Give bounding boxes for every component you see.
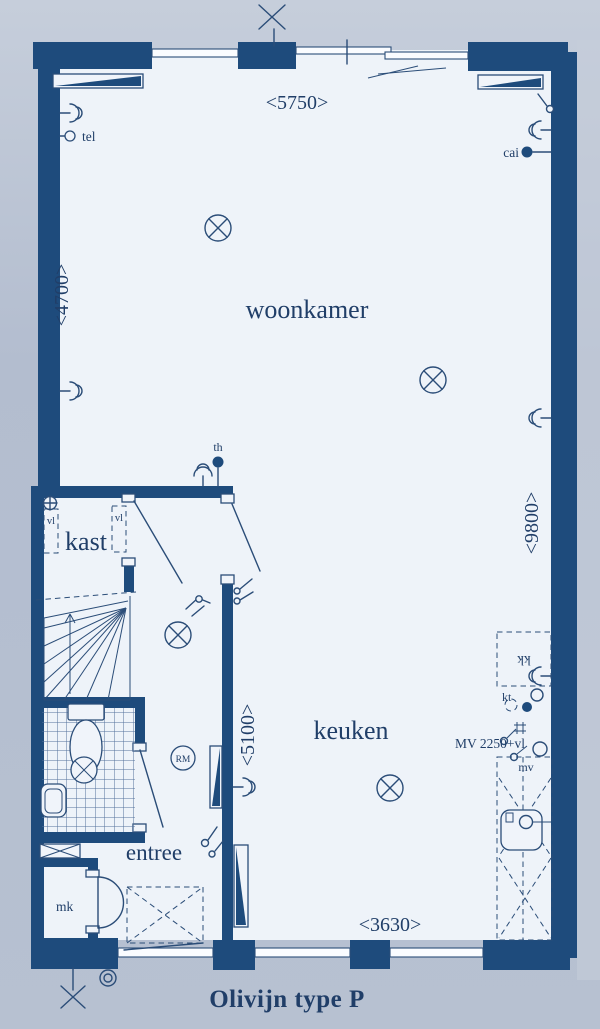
radiator-top-left <box>53 74 143 88</box>
wall-hall-keuken <box>222 577 233 940</box>
wall-toilet-east <box>135 697 145 745</box>
radiator-top-right <box>478 75 543 89</box>
floorplan-drawing: tel cai th RM vl vl <box>0 0 600 1029</box>
wall-mk-north <box>31 858 98 867</box>
window-bottom-mid <box>255 948 350 957</box>
vent-label: vl <box>47 516 55 527</box>
wall-kast-north <box>43 486 233 498</box>
radiator-entree <box>210 746 222 808</box>
washbasin <box>41 784 66 817</box>
plan-title: Olivijn type P <box>209 986 365 1013</box>
room-label-woonkamer: woonkamer <box>246 295 369 324</box>
wall-kast-east <box>124 564 134 592</box>
vent-label: vl <box>115 513 123 524</box>
room-label-keuken: keuken <box>313 716 388 745</box>
tap-label: kt <box>502 690 512 704</box>
window-top-mid <box>296 47 391 54</box>
window-bottom-right <box>390 948 483 957</box>
radiator-keuken <box>234 845 248 927</box>
dimension-keuken: <5100> <box>237 704 259 767</box>
toilet-room <box>41 704 135 832</box>
thermostat-label: th <box>213 440 222 454</box>
smoke-detector-label: RM <box>176 755 191 765</box>
room-label-kast: kast <box>65 527 108 556</box>
fridge-label: kk <box>517 653 531 668</box>
window-top-right <box>385 52 468 59</box>
room-label-entree: entree <box>126 840 182 865</box>
tel-label: tel <box>82 129 96 144</box>
dimension-top: <5750> <box>266 92 329 114</box>
floorplan-page: tel cai th RM vl vl <box>0 0 600 1029</box>
dimension-bottom: <3630> <box>359 914 422 936</box>
dimension-right: <9800> <box>521 492 543 555</box>
window-top-left <box>152 49 238 57</box>
mech-vent-height-label: MV 2250+vl <box>455 736 525 751</box>
cai-label: cai <box>503 145 519 160</box>
right-margin-shade <box>577 40 600 980</box>
duct-shaft <box>40 844 80 858</box>
floor-drain <box>71 757 97 783</box>
ceiling-point-icon <box>43 496 57 510</box>
mech-vent-label: mv <box>518 760 533 774</box>
smoke-detector: RM <box>171 746 195 770</box>
room-label-mk: mk <box>56 899 74 914</box>
dimension-left: <4700> <box>51 264 73 327</box>
